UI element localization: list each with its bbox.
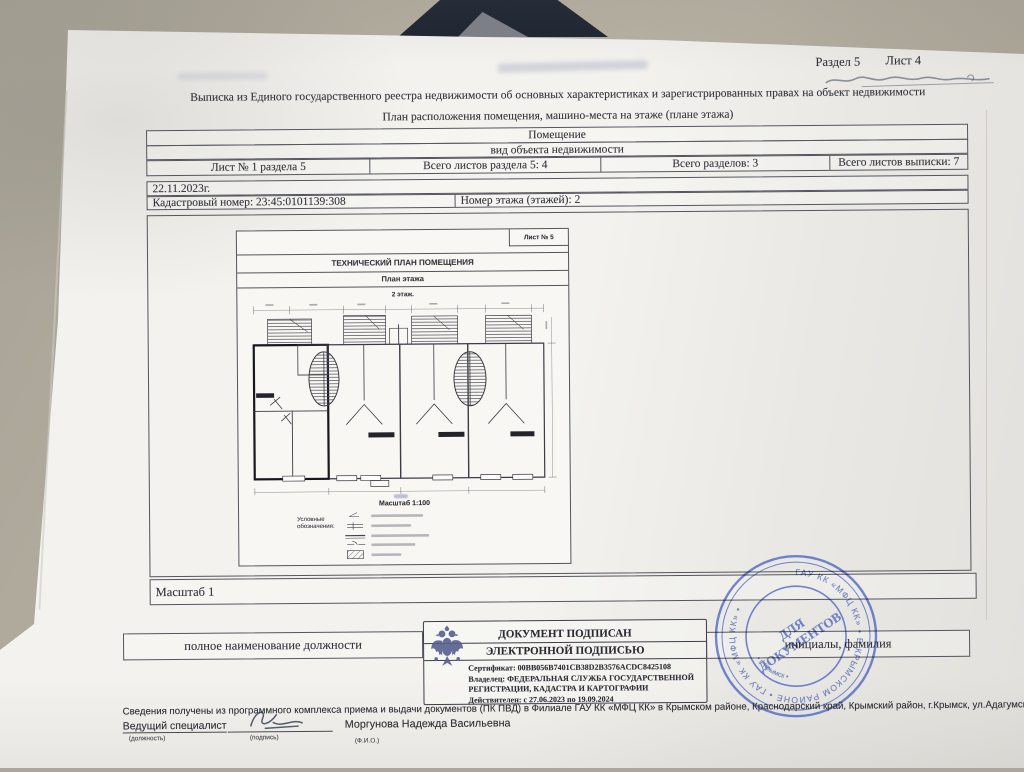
caption-signature: (подпись) xyxy=(250,734,279,741)
floor-number-cell: Номер этажа (этажей): 2 xyxy=(455,190,969,208)
esignature-box: ДОКУМЕНТ ПОДПИСАН ЭЛЕКТРОННОЙ ПОДПИСЬЮ С… xyxy=(423,619,708,705)
photo-scene: Раздел 5 Лист 4 Выписка из Единого госуд… xyxy=(0,0,1024,768)
sheet-number-cell: Лист № 1 раздела 5 xyxy=(146,158,369,176)
floor-plan-drawing xyxy=(239,301,567,496)
faint-stamp-smudge xyxy=(497,60,647,73)
coat-of-arms-icon xyxy=(430,625,464,669)
round-stamp: ГАУ КК «МФЦ КК» • В КРЫМСКОМ РАЙОНЕ • ГА… xyxy=(707,547,884,724)
handwritten-signature-icon xyxy=(241,706,321,733)
plan-sheet-number: Лист № 5 xyxy=(509,229,568,246)
specialist-label: Ведущий специалист xyxy=(123,720,227,734)
sections-total-cell: Всего разделов: 3 xyxy=(600,155,829,173)
caption-fio: (Ф.И.О.) xyxy=(355,737,379,744)
section-label: Раздел 5 xyxy=(815,55,860,70)
legend-symbols xyxy=(343,510,463,561)
sheets-total-cell: Всего листов выписки: 7 xyxy=(829,154,968,171)
plan-scale-label: Масштаб 1:100 xyxy=(239,499,570,509)
legend-title: Условные обозначения: xyxy=(297,517,343,531)
sheet-label: Лист 4 xyxy=(885,53,921,68)
sheets-in-section-cell: Всего листов раздела 5: 4 xyxy=(369,157,600,175)
cadastral-number-cell: Кадастровый номер: 23:45:0101139:308 xyxy=(147,194,455,210)
section-mark xyxy=(394,494,408,498)
position-caption-cell: полное наименование должности xyxy=(123,631,423,660)
document-subtitle: План расположения помещения, машино-мест… xyxy=(128,106,988,126)
specialist-name: Моргунова Надежда Васильевна xyxy=(345,717,511,730)
faint-stamp-smudge-2 xyxy=(178,72,268,80)
technical-plan-sheet: Лист № 5 ТЕХНИЧЕСКИЙ ПЛАН ПОМЕЩЕНИЯ План… xyxy=(236,228,572,567)
plan-subtitle-row: План этажа xyxy=(237,270,568,289)
caption-position: (должность) xyxy=(129,735,166,742)
document-content: Раздел 5 Лист 4 Выписка из Единого госуд… xyxy=(0,0,1024,772)
document-title: Выписка из Единого государственного реес… xyxy=(128,85,988,105)
floor-label: 2 этаж. xyxy=(237,290,568,300)
